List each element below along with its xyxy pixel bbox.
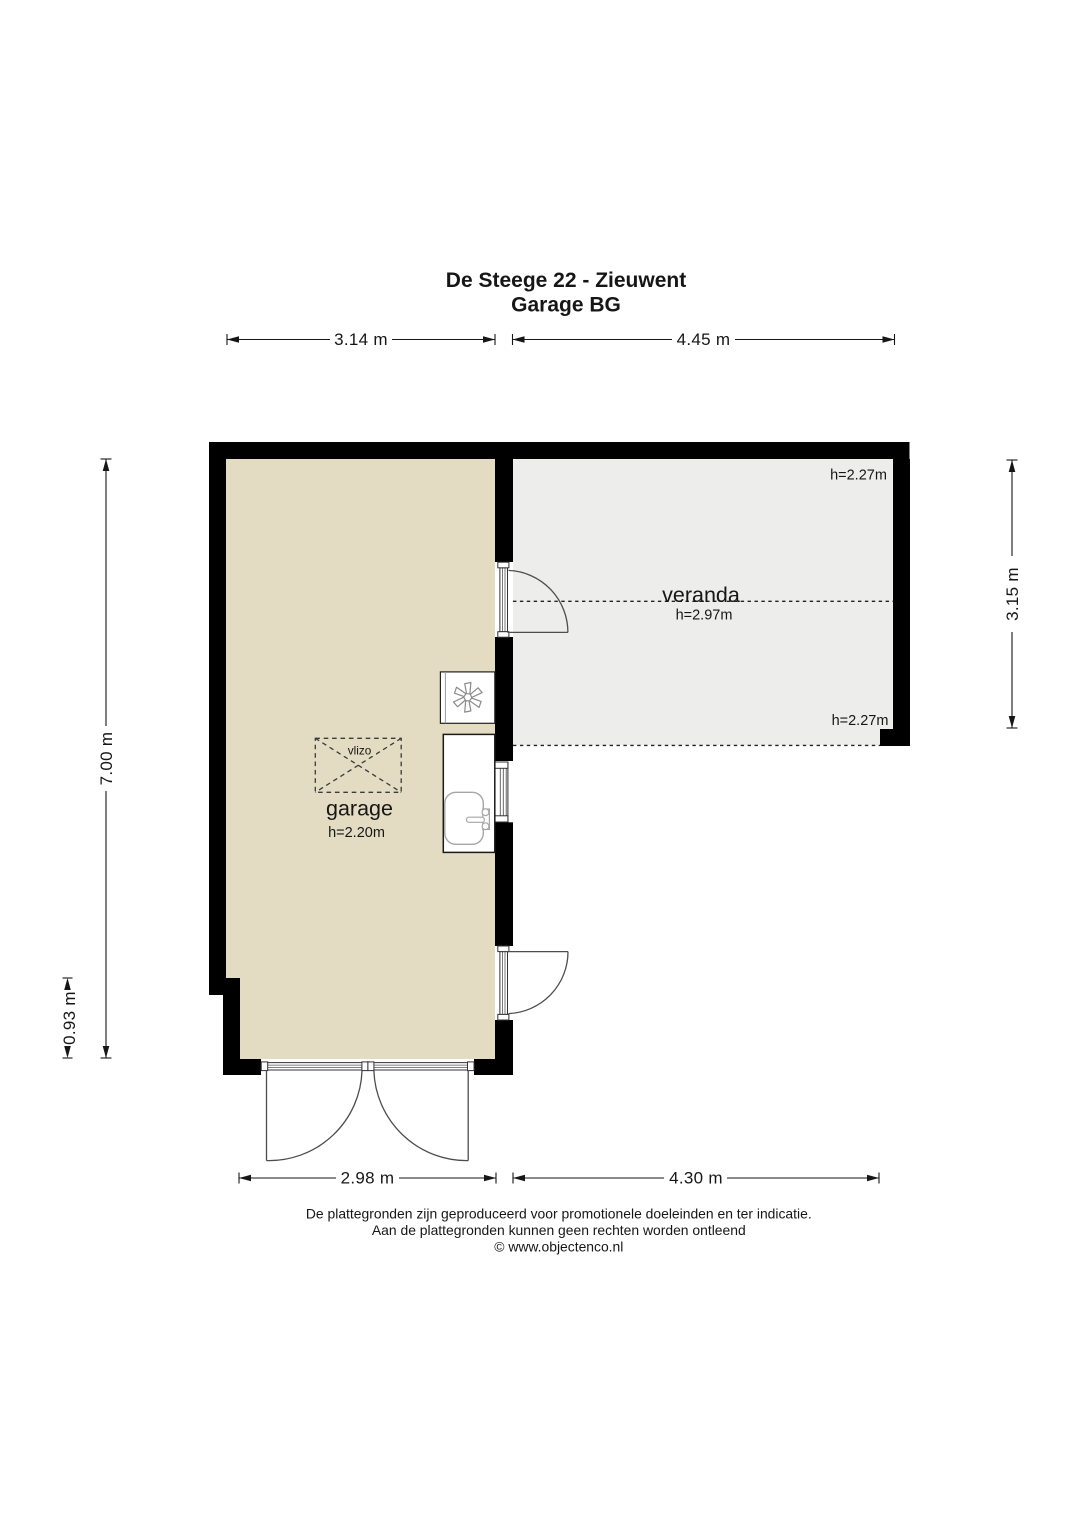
svg-text:garage: garage — [326, 797, 393, 821]
svg-text:vlizo: vlizo — [348, 744, 372, 758]
svg-text:© www.objectenco.nl: © www.objectenco.nl — [494, 1238, 623, 1254]
svg-text:4.45 m: 4.45 m — [677, 330, 731, 349]
svg-text:h=2.27m: h=2.27m — [830, 468, 887, 484]
svg-text:2.98 m: 2.98 m — [341, 1169, 395, 1188]
svg-text:4.30 m: 4.30 m — [669, 1169, 723, 1188]
svg-text:0.93 m: 0.93 m — [60, 991, 79, 1045]
svg-text:3.14 m: 3.14 m — [334, 330, 388, 349]
svg-text:De Steege 22 - Zieuwent: De Steege 22 - Zieuwent — [446, 269, 686, 292]
svg-text:De plattegronden zijn geproduc: De plattegronden zijn geproduceerd voor … — [306, 1206, 812, 1222]
svg-text:7.00 m: 7.00 m — [97, 732, 116, 786]
svg-text:veranda: veranda — [662, 583, 740, 607]
svg-text:h=2.97m: h=2.97m — [676, 608, 733, 624]
svg-text:3.15 m: 3.15 m — [1003, 567, 1022, 621]
svg-text:h=2.20m: h=2.20m — [328, 825, 385, 841]
svg-text:Garage BG: Garage BG — [511, 294, 621, 317]
svg-text:h=2.27m: h=2.27m — [832, 713, 889, 729]
svg-text:Aan de plattegronden kunnen ge: Aan de plattegronden kunnen geen rechten… — [372, 1222, 746, 1238]
